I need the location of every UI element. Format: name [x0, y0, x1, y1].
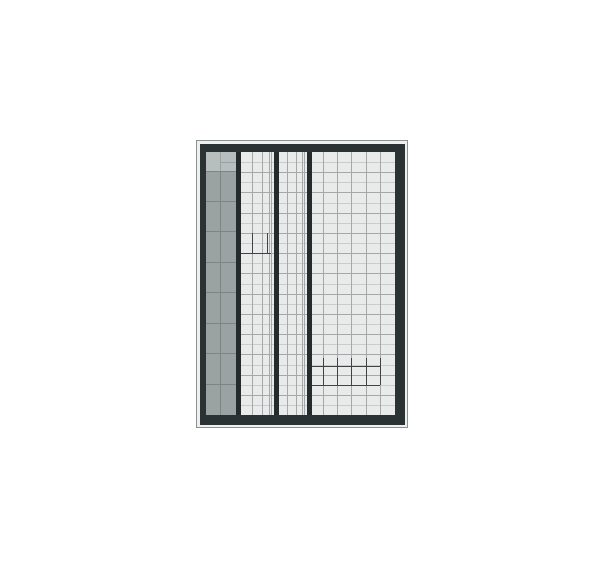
- grid-hline: [236, 354, 395, 355]
- thick-divider: [236, 152, 241, 415]
- dark-mark-vline: [351, 358, 352, 385]
- dark-mark-hline: [241, 253, 271, 254]
- header-column-center-divider: [220, 171, 221, 415]
- grid-hline: [236, 284, 395, 285]
- dark-mark-vline: [337, 358, 338, 385]
- header-row-divider: [206, 353, 236, 354]
- grid-hline: [236, 162, 395, 163]
- dark-mark-vline: [252, 233, 253, 253]
- middle-section-vline: [287, 152, 288, 415]
- grid-content: [206, 152, 395, 415]
- grid-hline: [236, 203, 395, 204]
- grid-hline: [236, 304, 395, 305]
- dark-mark-vline: [267, 233, 268, 253]
- grid-hline: [236, 395, 395, 396]
- panel-mat: [197, 141, 407, 427]
- grid-hline: [236, 314, 395, 315]
- dark-mark-hline: [312, 385, 380, 386]
- middle-section-vline: [304, 152, 305, 415]
- header-row-divider: [206, 384, 236, 385]
- grid-hline: [236, 243, 395, 244]
- header-row-divider: [206, 171, 236, 172]
- header-row-divider: [206, 292, 236, 293]
- header-row-divider: [206, 201, 236, 202]
- grid-hline: [236, 263, 395, 264]
- grid-hline: [236, 334, 395, 335]
- thick-divider: [274, 152, 279, 415]
- panel-frame: [200, 144, 405, 425]
- grid-hline: [236, 223, 395, 224]
- middle-section-vline: [302, 152, 303, 415]
- middle-section-vline: [296, 152, 297, 415]
- grid-hline: [236, 405, 395, 406]
- left-section-vline: [271, 152, 272, 415]
- corner-block-split-line: [220, 162, 236, 163]
- grid-hline: [236, 294, 395, 295]
- grid-hline: [236, 344, 395, 345]
- grid-hline: [236, 233, 395, 234]
- page-canvas: [0, 0, 600, 567]
- grid-hline: [236, 172, 395, 173]
- header-column: [206, 152, 236, 415]
- dark-mark-vline: [323, 358, 324, 385]
- grid-hline: [236, 273, 395, 274]
- grid-hline: [236, 182, 395, 183]
- left-section-vline: [269, 152, 270, 415]
- dark-mark-vline: [380, 358, 381, 385]
- grid-hline: [236, 192, 395, 193]
- header-row-divider: [206, 262, 236, 263]
- grid-hline: [236, 213, 395, 214]
- header-row-divider: [206, 323, 236, 324]
- left-section-vline: [252, 152, 253, 415]
- grid-hline: [236, 375, 395, 376]
- left-section-vline: [262, 152, 263, 415]
- thick-divider: [307, 152, 312, 415]
- grid-hline: [236, 324, 395, 325]
- document-thumbnail-panel[interactable]: [196, 140, 408, 428]
- dark-mark-vline: [366, 358, 367, 385]
- header-row-divider: [206, 231, 236, 232]
